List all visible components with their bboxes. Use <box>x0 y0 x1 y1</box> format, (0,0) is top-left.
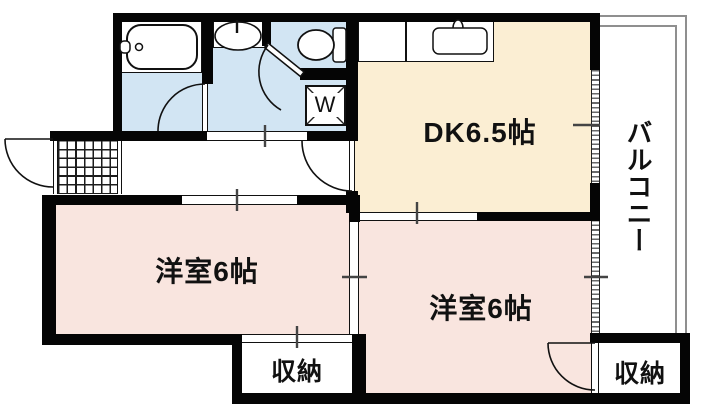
toilet-tank-icon <box>333 28 346 62</box>
washer-label: W <box>312 93 339 117</box>
floorplan-canvas: DK6.5帖 洋室6帖 洋室6帖 収納 収納 W バルコニー <box>0 0 712 419</box>
storage-center-label: 収納 <box>242 352 352 388</box>
bathroom-door-arc-icon <box>158 84 205 131</box>
storage-right-label: 収納 <box>586 354 694 390</box>
bathtub-drain-icon <box>136 44 143 51</box>
west-room-right-label: 洋室6帖 <box>371 287 591 327</box>
bathtub-faucet-icon <box>120 41 130 53</box>
toilet-bowl-icon <box>298 30 334 60</box>
kitchen-sink-icon <box>433 28 487 54</box>
west-room-left-label: 洋室6帖 <box>97 250 317 290</box>
balcony-label: バルコニー <box>620 106 657 266</box>
dk-door-arc-icon <box>302 141 352 191</box>
dk-label: DK6.5帖 <box>370 111 590 151</box>
entrance-door-icon <box>5 139 53 187</box>
